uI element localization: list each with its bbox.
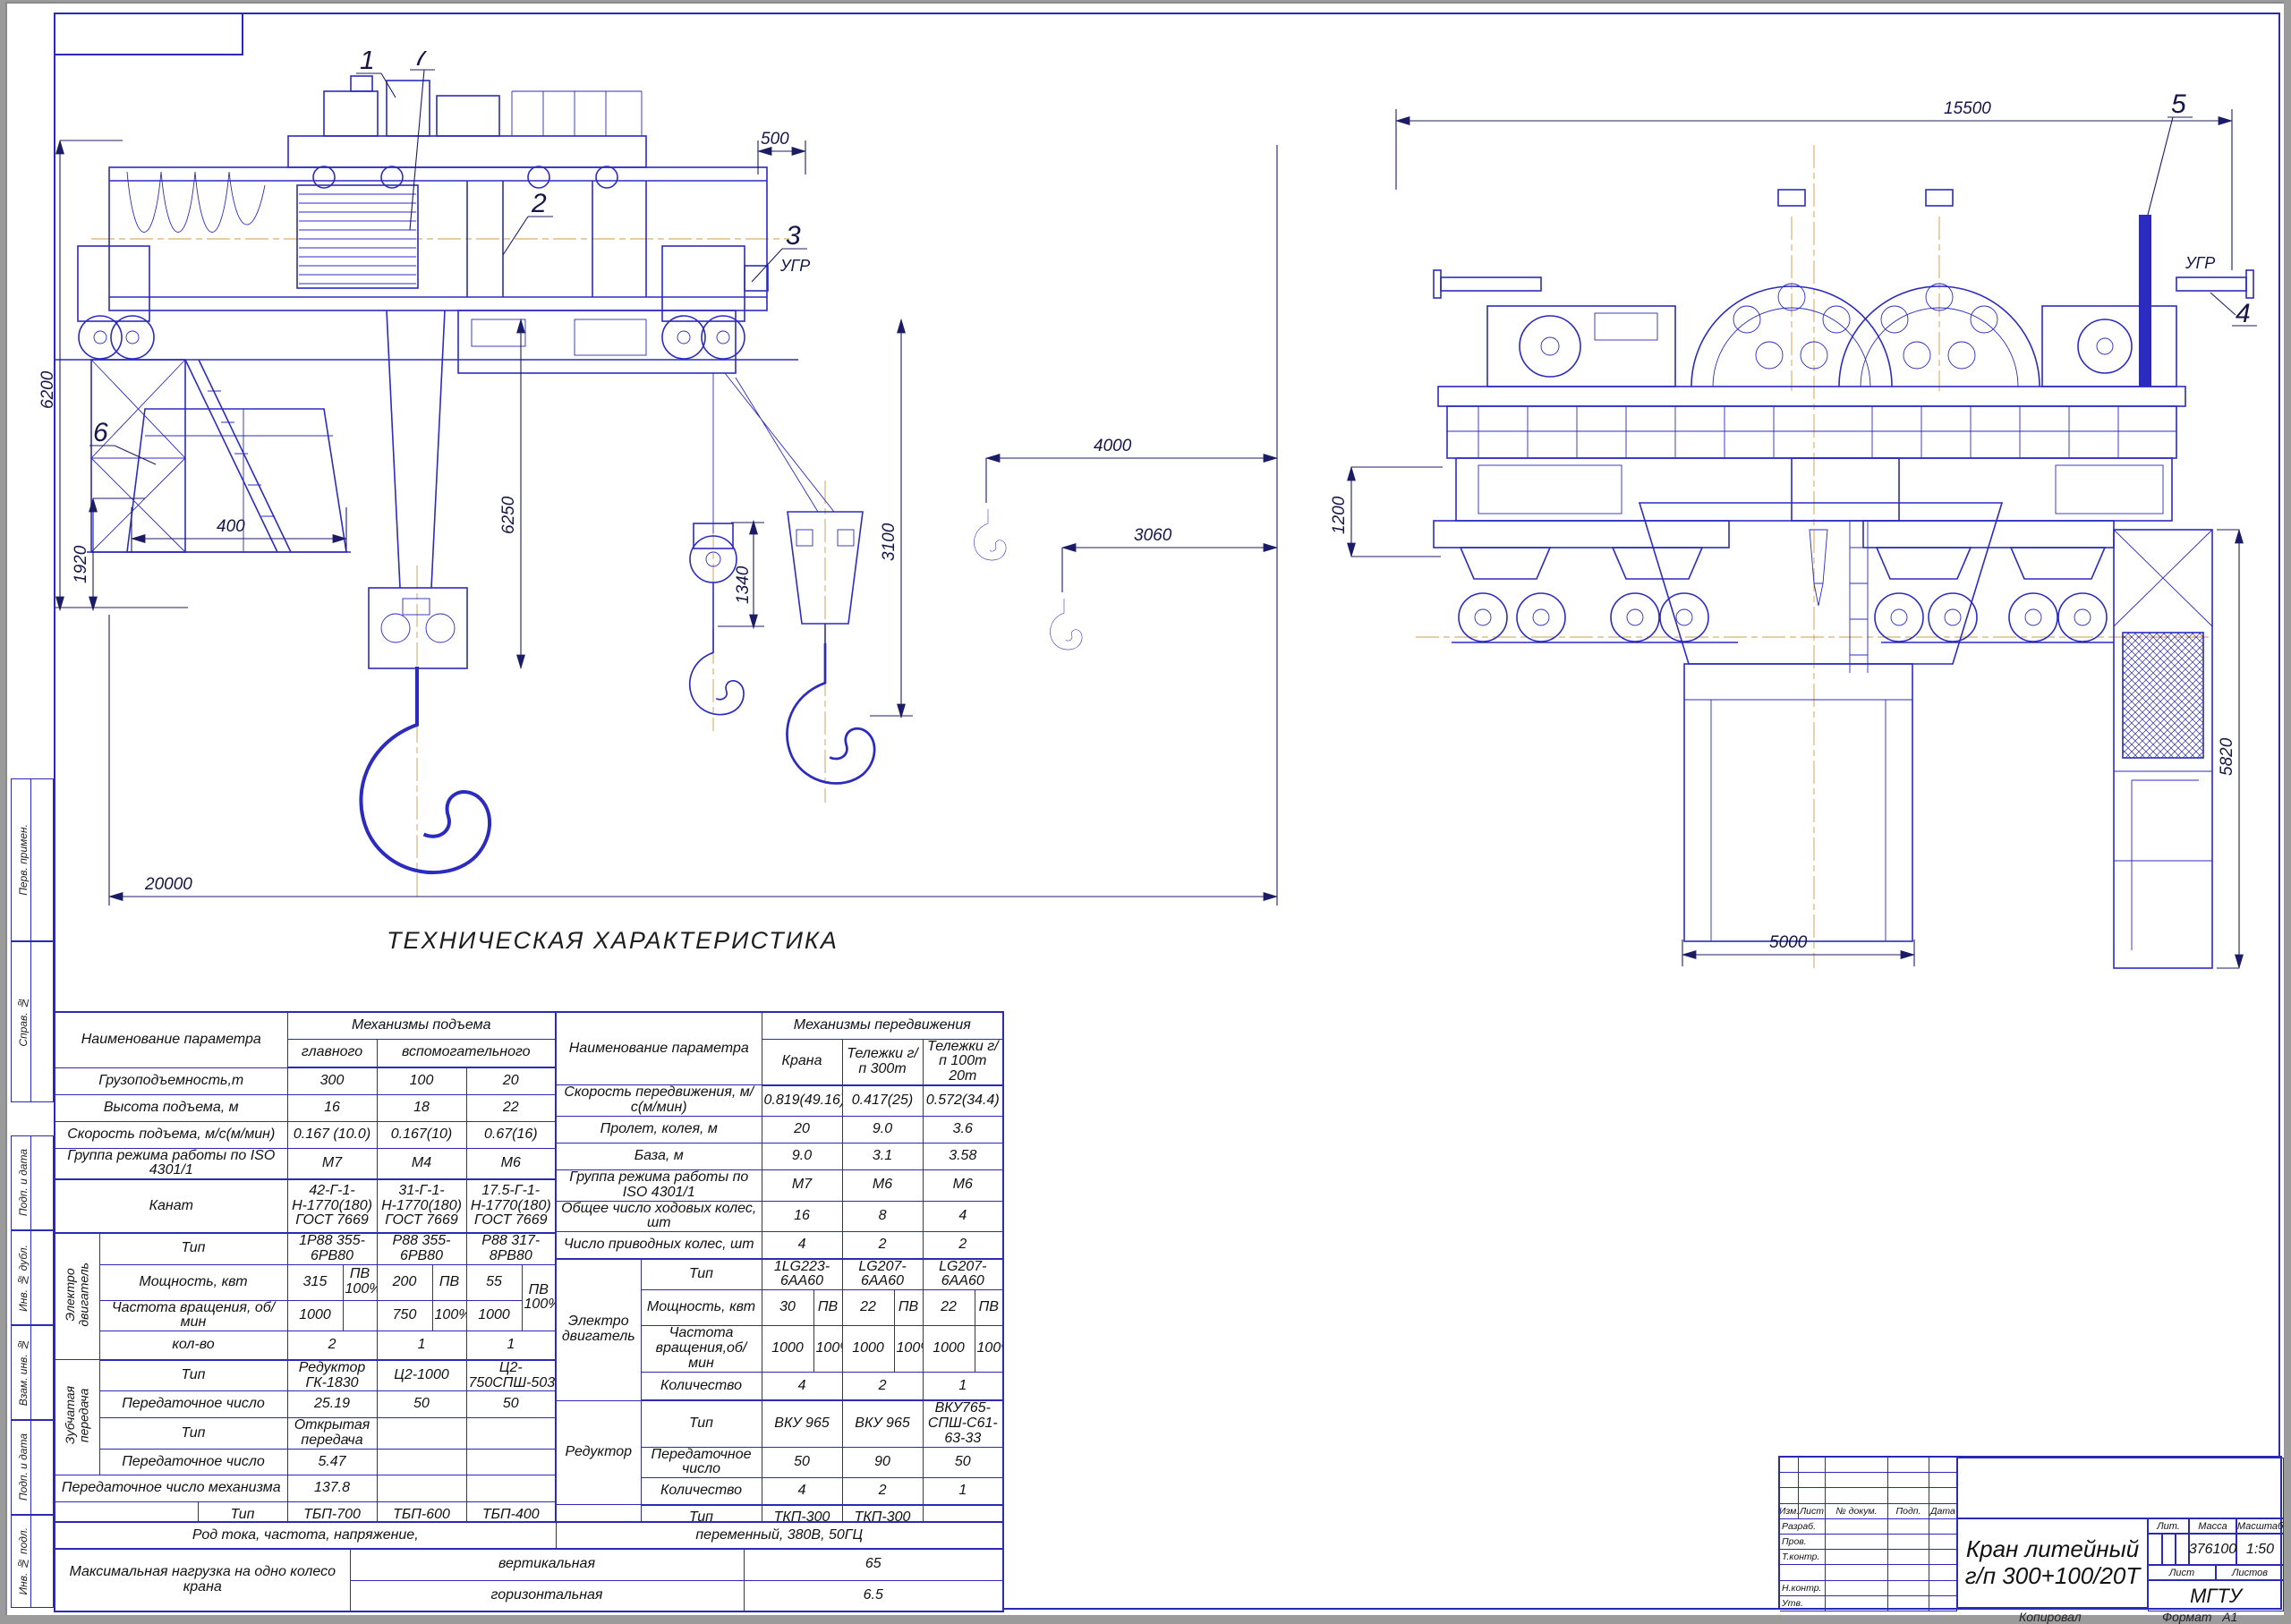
sheet-label: Лист <box>2148 1565 2216 1580</box>
cell: 2 <box>842 1478 923 1505</box>
cell: LG207-6АА60 <box>842 1259 923 1290</box>
dim-end-offset: 500 <box>761 130 789 149</box>
crane-end-view: 15500 1200 5820 5000 УГР 5 4 <box>1326 82 2275 986</box>
row-label: Мощность, квт <box>641 1290 762 1326</box>
cell-pv: 100% <box>894 1326 923 1372</box>
cell: 16 <box>762 1201 842 1232</box>
cell: 3.1 <box>842 1143 923 1169</box>
group-header: Механизмы передвижения <box>762 1012 1003 1039</box>
cell: ВКУ 965 <box>842 1400 923 1447</box>
header-row: Наименование параметра Механизмы подъема <box>55 1012 556 1039</box>
dim-main-hook: 6250 <box>499 496 518 534</box>
end-trucks-and-rail <box>55 246 798 360</box>
cell: М6 <box>466 1148 556 1179</box>
format-value: А1 <box>2222 1610 2237 1624</box>
cell-pv: ПВ <box>813 1290 842 1326</box>
aux-hook-100t <box>787 512 874 783</box>
hoist-table: Наименование параметра Механизмы подъема… <box>54 1011 557 1554</box>
row-label: Канат <box>55 1179 287 1233</box>
cell: 1 <box>923 1478 1003 1505</box>
cell: 31-Г-1-Н-1770(180) ГОСТ 7669 <box>377 1179 466 1233</box>
scale-label: Масштаб <box>2236 1518 2284 1534</box>
dim-aux-block: 1340 <box>734 565 753 604</box>
row-lift-speed: Скорость подъема, м/с(м/мин) 0.167 (10.0… <box>55 1121 556 1148</box>
margin-label: Справ. № <box>17 997 30 1047</box>
side-view-callouts: 1 7 2 3 6 <box>89 51 807 464</box>
margin-box-inv-dubl: Инв. № дубл. <box>11 1230 54 1325</box>
cell: 2 <box>287 1331 377 1360</box>
param-header: Наименование параметра <box>55 1012 287 1067</box>
row-label: Передаточное число <box>99 1449 287 1475</box>
scale-value: 1:50 <box>2236 1534 2284 1565</box>
cell: 50 <box>923 1447 1003 1478</box>
cell-pv: ПВ <box>894 1290 923 1326</box>
sheet: Перв. примен. Справ. № Подп. и дата Инв.… <box>5 2 2284 1615</box>
cell: 42-Г-1-Н-1770(180) ГОСТ 7669 <box>287 1179 377 1233</box>
dim-span: 20000 <box>144 875 192 894</box>
col-crane: Крана <box>762 1039 842 1085</box>
rail-level-label: УГР <box>779 257 810 275</box>
cell: М6 <box>923 1169 1003 1201</box>
corner-stamp-box <box>54 13 243 55</box>
cell <box>466 1475 556 1501</box>
copied-label: Копировал <box>2019 1610 2082 1624</box>
cell-pv <box>343 1300 377 1331</box>
end-view-callouts: 5 4 <box>2148 89 2257 328</box>
row-duty: Группа режима работы по ISO 4301/1 М7 М6… <box>556 1169 1003 1201</box>
rail-level-label-end: УГР <box>2185 254 2215 272</box>
cell: 1 <box>377 1331 466 1360</box>
row-label: Передаточное число <box>99 1391 287 1418</box>
col-data: Дата <box>1929 1504 1957 1519</box>
row-label: Группа режима работы по ISO 4301/1 <box>556 1169 762 1201</box>
centerlines <box>91 239 1277 897</box>
cell: 3.58 <box>923 1143 1003 1169</box>
cell: 2 <box>923 1232 1003 1259</box>
cell: 300 <box>287 1067 377 1094</box>
group-motor: Электро двигатель <box>55 1233 99 1360</box>
cell: ВКУ765-СПШ-С61-63-33 <box>923 1400 1003 1447</box>
cell-pv: 100% <box>432 1300 466 1331</box>
aux-trolley <box>387 310 834 588</box>
cell: 9.0 <box>842 1116 923 1143</box>
row-label: Количество <box>641 1372 762 1400</box>
end-view-dimensions: 15500 1200 5820 5000 УГР <box>1330 99 2239 968</box>
row-label: Число приводных колес, шт <box>556 1232 762 1259</box>
cell: 1000 <box>842 1326 894 1372</box>
margin-label: Подп. и дата <box>17 1433 30 1501</box>
callout-6: 6 <box>93 418 108 447</box>
cell: 1LG223-6АА60 <box>762 1259 842 1290</box>
cell: Редуктор ГК-1830 <box>287 1360 377 1391</box>
cell: 20 <box>762 1116 842 1143</box>
access-cage <box>2114 530 2212 968</box>
mass-value: 376100 <box>2189 1534 2236 1565</box>
cell <box>377 1418 466 1450</box>
doc-designation-cell <box>1957 1458 2284 1518</box>
cell: 25.19 <box>287 1391 377 1418</box>
role-utv: Утв. <box>1780 1596 1826 1611</box>
row-wheels-total: Общее число ходовых колес, шт 16 8 4 <box>556 1201 1003 1232</box>
cell-pv: 100% <box>813 1326 842 1372</box>
cell: 3.6 <box>923 1116 1003 1143</box>
end-centerlines <box>1416 145 2212 968</box>
col-trolley-100: Тележки г/п 100т 20т <box>923 1039 1003 1085</box>
row-motor-qty: кол-во 2 1 1 <box>55 1331 556 1360</box>
row-travel-speed: Скорость передвижения, м/с(м/мин) 0.819(… <box>556 1085 1003 1117</box>
cell: 2 <box>842 1372 923 1400</box>
row-load-vertical: Максимальная нагрузка на одно колесо кра… <box>55 1549 1003 1580</box>
row-mech-ratio: Передаточное число механизма 137.8 <box>55 1475 556 1501</box>
row-duty: Группа режима работы по ISO 4301/1 М7 М4… <box>55 1148 556 1179</box>
cell: 0.572(34.4) <box>923 1085 1003 1117</box>
row-label: Род тока, частота, напряжение, <box>55 1522 556 1549</box>
dim-hook-gap2: 3060 <box>1134 526 1172 545</box>
doc-title-line1: Кран литейный <box>1966 1536 2139 1563</box>
margin-box-podp-data-2: Подп. и дата <box>11 1420 54 1515</box>
row-motor-freq: Частота вращения, об/мин 1000 750 100% 1… <box>55 1300 556 1331</box>
cell: 20 <box>466 1067 556 1094</box>
cell: М6 <box>842 1169 923 1201</box>
cell: 55 <box>466 1264 522 1300</box>
cell-pv: ПВ 100% <box>522 1264 556 1331</box>
margin-box-inv-podl: Инв. № подл. <box>11 1515 54 1608</box>
row-lift-height: Высота подъема, м 16 18 22 <box>55 1094 556 1121</box>
cell: 4 <box>923 1201 1003 1232</box>
cell: 22 <box>923 1290 975 1326</box>
row-gear-type: Зубчатая передача Тип Редуктор ГК-1830 Ц… <box>55 1360 556 1391</box>
dim-hook-gap1: 4000 <box>1094 437 1132 455</box>
cell: 100 <box>377 1067 466 1094</box>
cell: 1Р88 355-6РВ80 <box>287 1233 377 1264</box>
mass-label: Масса <box>2189 1518 2236 1534</box>
cell: 5.47 <box>287 1449 377 1475</box>
doc-title: Кран литейный г/п 300+100/20Т <box>1957 1518 2148 1608</box>
drawing-page: { "margin_labels":["Перв. примен.","Спра… <box>0 0 2291 1619</box>
cell: М7 <box>762 1169 842 1201</box>
cell: М4 <box>377 1148 466 1179</box>
margin-label: Взам. инв. № <box>17 1339 30 1406</box>
main-hook-block <box>361 588 490 872</box>
cell: 18 <box>377 1094 466 1121</box>
row-label: Тип <box>99 1418 287 1450</box>
role-nkontr: Н.контр. <box>1780 1581 1826 1596</box>
dim-total-height: 6200 <box>38 370 57 409</box>
sheets-label: Листов <box>2216 1565 2284 1580</box>
cell: 4 <box>762 1478 842 1505</box>
revision-grid: Изм. Лист № докум. Подп. Дата Разраб. Пр… <box>1780 1458 1957 1608</box>
row-label: База, м <box>556 1143 762 1169</box>
current-row-table: Род тока, частота, напряжение, переменны… <box>54 1521 1004 1550</box>
dim-overall-width: 15500 <box>1944 99 1991 118</box>
row-label: Группа режима работы по ISO 4301/1 <box>55 1148 287 1179</box>
lit-cell-2 <box>2162 1534 2176 1565</box>
callout-2: 2 <box>531 189 547 218</box>
cell: 1000 <box>466 1300 522 1331</box>
cell: Открытая передача <box>287 1418 377 1450</box>
role-razrab: Разраб. <box>1780 1519 1826 1535</box>
dim-rail-height: 1920 <box>72 545 90 583</box>
cell: Р88 355-6РВ80 <box>377 1233 466 1264</box>
row-label: Тип <box>641 1400 762 1447</box>
cell: 0.819(49.16) <box>762 1085 842 1117</box>
row-label: Тип <box>641 1259 762 1290</box>
cell-pv: 100% <box>975 1326 1003 1372</box>
cell: переменный, 380В, 50ГЦ <box>556 1522 1003 1549</box>
aux-hook-20t <box>690 523 744 715</box>
cell-pv: ПВ 100% <box>343 1264 377 1300</box>
callout-1: 1 <box>360 51 375 75</box>
cell: 1 <box>923 1372 1003 1400</box>
row-motor-power: Мощность, квт 315 ПВ 100% 200 ПВ 55 ПВ 1… <box>55 1264 556 1300</box>
cell: 2 <box>842 1232 923 1259</box>
cell: 1 <box>466 1331 556 1360</box>
row-wheels-driven: Число приводных колес, шт 4 2 2 <box>556 1232 1003 1259</box>
group-header: Механизмы подъема <box>287 1012 556 1039</box>
param-header: Наименование параметра <box>556 1012 762 1085</box>
row-label: Высота подъема, м <box>55 1094 287 1121</box>
cell: 17.5-Г-1-Н-1770(180) ГОСТ 7669 <box>466 1179 556 1233</box>
col-main: главного <box>287 1039 377 1067</box>
callout-3: 3 <box>786 221 801 251</box>
row-label: кол-во <box>99 1331 287 1360</box>
row-rope: Канат 42-Г-1-Н-1770(180) ГОСТ 7669 31-Г-… <box>55 1179 556 1233</box>
margin-box-sprav: Справ. № <box>11 941 54 1102</box>
row-label: Количество <box>641 1478 762 1505</box>
cell: Ц2-1000 <box>377 1360 466 1391</box>
lit-label: Лит. <box>2148 1518 2189 1534</box>
row-label: Общее число ходовых колес, шт <box>556 1201 762 1232</box>
col-ndokum: № докум. <box>1826 1504 1888 1519</box>
doc-title-line2: г/п 300+100/20Т <box>1965 1563 2141 1590</box>
cell <box>377 1475 466 1501</box>
margin-label: Инв. № дубл. <box>17 1245 30 1312</box>
cell: 0.167(10) <box>377 1121 466 1148</box>
col-podp: Подп. <box>1888 1504 1929 1519</box>
group-gear: Зубчатая передача <box>55 1360 99 1475</box>
margin-label: Подп. и дата <box>17 1149 30 1216</box>
cell: 200 <box>377 1264 432 1300</box>
wheel-load-table: Максимальная нагрузка на одно колесо кра… <box>54 1548 1004 1612</box>
cell: 1000 <box>923 1326 975 1372</box>
col-aux: вспомогательного <box>377 1039 556 1067</box>
cell: 50 <box>377 1391 466 1418</box>
row-label: Передаточное число механизма <box>55 1475 287 1501</box>
callout-4: 4 <box>2236 299 2251 328</box>
dim-aux-hook: 3100 <box>880 523 899 561</box>
col-trolley-300: Тележки г/п 300т <box>842 1039 923 1085</box>
cell: 0.417(25) <box>842 1085 923 1117</box>
format-word: Формат <box>2162 1610 2212 1624</box>
callout-5: 5 <box>2171 89 2186 119</box>
dim-buffer-height: 1200 <box>1330 496 1349 534</box>
row-capacity: Грузоподъемность,т 300 100 20 <box>55 1067 556 1094</box>
cell-pv: ПВ <box>432 1264 466 1300</box>
dim-ladle-width: 5000 <box>1769 933 1808 952</box>
dim-cab: 400 <box>217 517 245 536</box>
margin-label: Инв. № подл. <box>17 1527 30 1594</box>
row-label: Максимальная нагрузка на одно колесо кра… <box>55 1549 350 1611</box>
side-view-dimensions: 6200 1920 500 1340 6250 3100 4000 3060 <box>38 130 1277 906</box>
row-motor-type: Электро двигатель Тип 1LG223-6АА60 LG207… <box>556 1259 1003 1290</box>
row-label: Мощность, квт <box>99 1264 287 1300</box>
row-label: Частота вращения, об/мин <box>99 1300 287 1331</box>
role-empty <box>1780 1565 1826 1581</box>
cell: 1000 <box>762 1326 813 1372</box>
cell: М7 <box>287 1148 377 1179</box>
cell: 22 <box>466 1094 556 1121</box>
cell: 1000 <box>287 1300 343 1331</box>
cell: 90 <box>842 1447 923 1478</box>
row-label: Скорость передвижения, м/с(м/мин) <box>556 1085 762 1117</box>
group-motor: Электро двигатель <box>556 1259 641 1400</box>
dim-cage-height: 5820 <box>2218 737 2236 776</box>
row-gear-type2: Тип Открытая передача <box>55 1418 556 1450</box>
row-label: Тип <box>99 1360 287 1391</box>
format-label: Формат А1 <box>2162 1610 2237 1624</box>
cell: 137.8 <box>287 1475 377 1501</box>
col-list: Лист <box>1799 1504 1826 1519</box>
title-block: Изм. Лист № докум. Подп. Дата Разраб. Пр… <box>1778 1456 2282 1610</box>
row-base: База, м 9.0 3.1 3.58 <box>556 1143 1003 1169</box>
cell <box>466 1418 556 1450</box>
cell: 22 <box>842 1290 894 1326</box>
cell: 4 <box>762 1232 842 1259</box>
cell: 750 <box>377 1300 432 1331</box>
cell: Р88 317-8РВ80 <box>466 1233 556 1264</box>
cell: 0.167 (10.0) <box>287 1121 377 1148</box>
sub-label: горизонтальная <box>350 1580 744 1611</box>
cell: 315 <box>287 1264 343 1300</box>
margin-label: Перв. примен. <box>17 824 30 896</box>
row-label: Частота вращения,об/мин <box>641 1326 762 1372</box>
organization: МГТУ <box>2148 1580 2284 1611</box>
cell-pv: ПВ <box>975 1290 1003 1326</box>
travel-table: Наименование параметра Механизмы передви… <box>555 1011 1004 1610</box>
row-gear-ratio2: Передаточное число 5.47 <box>55 1449 556 1475</box>
col-izm: Изм. <box>1780 1504 1799 1519</box>
role-prov: Пров. <box>1780 1535 1826 1550</box>
hoist-machinery <box>1487 190 2176 387</box>
cell: LG207-6АА60 <box>923 1259 1003 1290</box>
row-gear-ratio: Передаточное число 25.19 50 50 <box>55 1391 556 1418</box>
spec-heading: ТЕХНИЧЕСКАЯ ХАРАКТЕРИСТИКА <box>387 927 839 955</box>
row-span: Пролет, колея, м 20 9.0 3.6 <box>556 1116 1003 1143</box>
callout-7: 7 <box>413 51 430 72</box>
sub-label: вертикальная <box>350 1549 744 1580</box>
row-reducer-type: Редуктор Тип ВКУ 965 ВКУ 965 ВКУ765-СПШ-… <box>556 1400 1003 1447</box>
cell: 9.0 <box>762 1143 842 1169</box>
cell: 50 <box>466 1391 556 1418</box>
bridge-and-trolley <box>109 76 767 310</box>
cell: 0.67(16) <box>466 1121 556 1148</box>
cell <box>377 1449 466 1475</box>
margin-box-podp-data-1: Подп. и дата <box>11 1135 54 1230</box>
end-carriages <box>1434 521 2114 642</box>
row-label: Скорость подъема, м/с(м/мин) <box>55 1121 287 1148</box>
header-row: Наименование параметра Механизмы передви… <box>556 1012 1003 1039</box>
cell: 65 <box>744 1549 1003 1580</box>
lit-cell-1 <box>2148 1534 2162 1565</box>
role-tkontr: Т.контр. <box>1780 1550 1826 1565</box>
cell: Ц2-750СПШ-5031 <box>466 1360 556 1391</box>
row-current: Род тока, частота, напряжение, переменны… <box>55 1522 1003 1549</box>
cell <box>466 1449 556 1475</box>
cell: 6.5 <box>744 1580 1003 1611</box>
lit-cell-3 <box>2176 1534 2189 1565</box>
row-label: Грузоподъемность,т <box>55 1067 287 1094</box>
cell: ВКУ 965 <box>762 1400 842 1447</box>
group-reducer: Редуктор <box>556 1400 641 1504</box>
row-motor-type: Электро двигатель Тип 1Р88 355-6РВ80 Р88… <box>55 1233 556 1264</box>
cell: 30 <box>762 1290 813 1326</box>
cell: 4 <box>762 1372 842 1400</box>
row-label: Тип <box>99 1233 287 1264</box>
crane-side-view: 6200 1920 500 1340 6250 3100 4000 3060 <box>38 51 1308 946</box>
cell: 16 <box>287 1094 377 1121</box>
row-label: Пролет, колея, м <box>556 1116 762 1143</box>
row-label: Передаточное число <box>641 1447 762 1478</box>
cell: 8 <box>842 1201 923 1232</box>
margin-box-vzam-inv: Взам. инв. № <box>11 1325 54 1420</box>
cell: 50 <box>762 1447 842 1478</box>
